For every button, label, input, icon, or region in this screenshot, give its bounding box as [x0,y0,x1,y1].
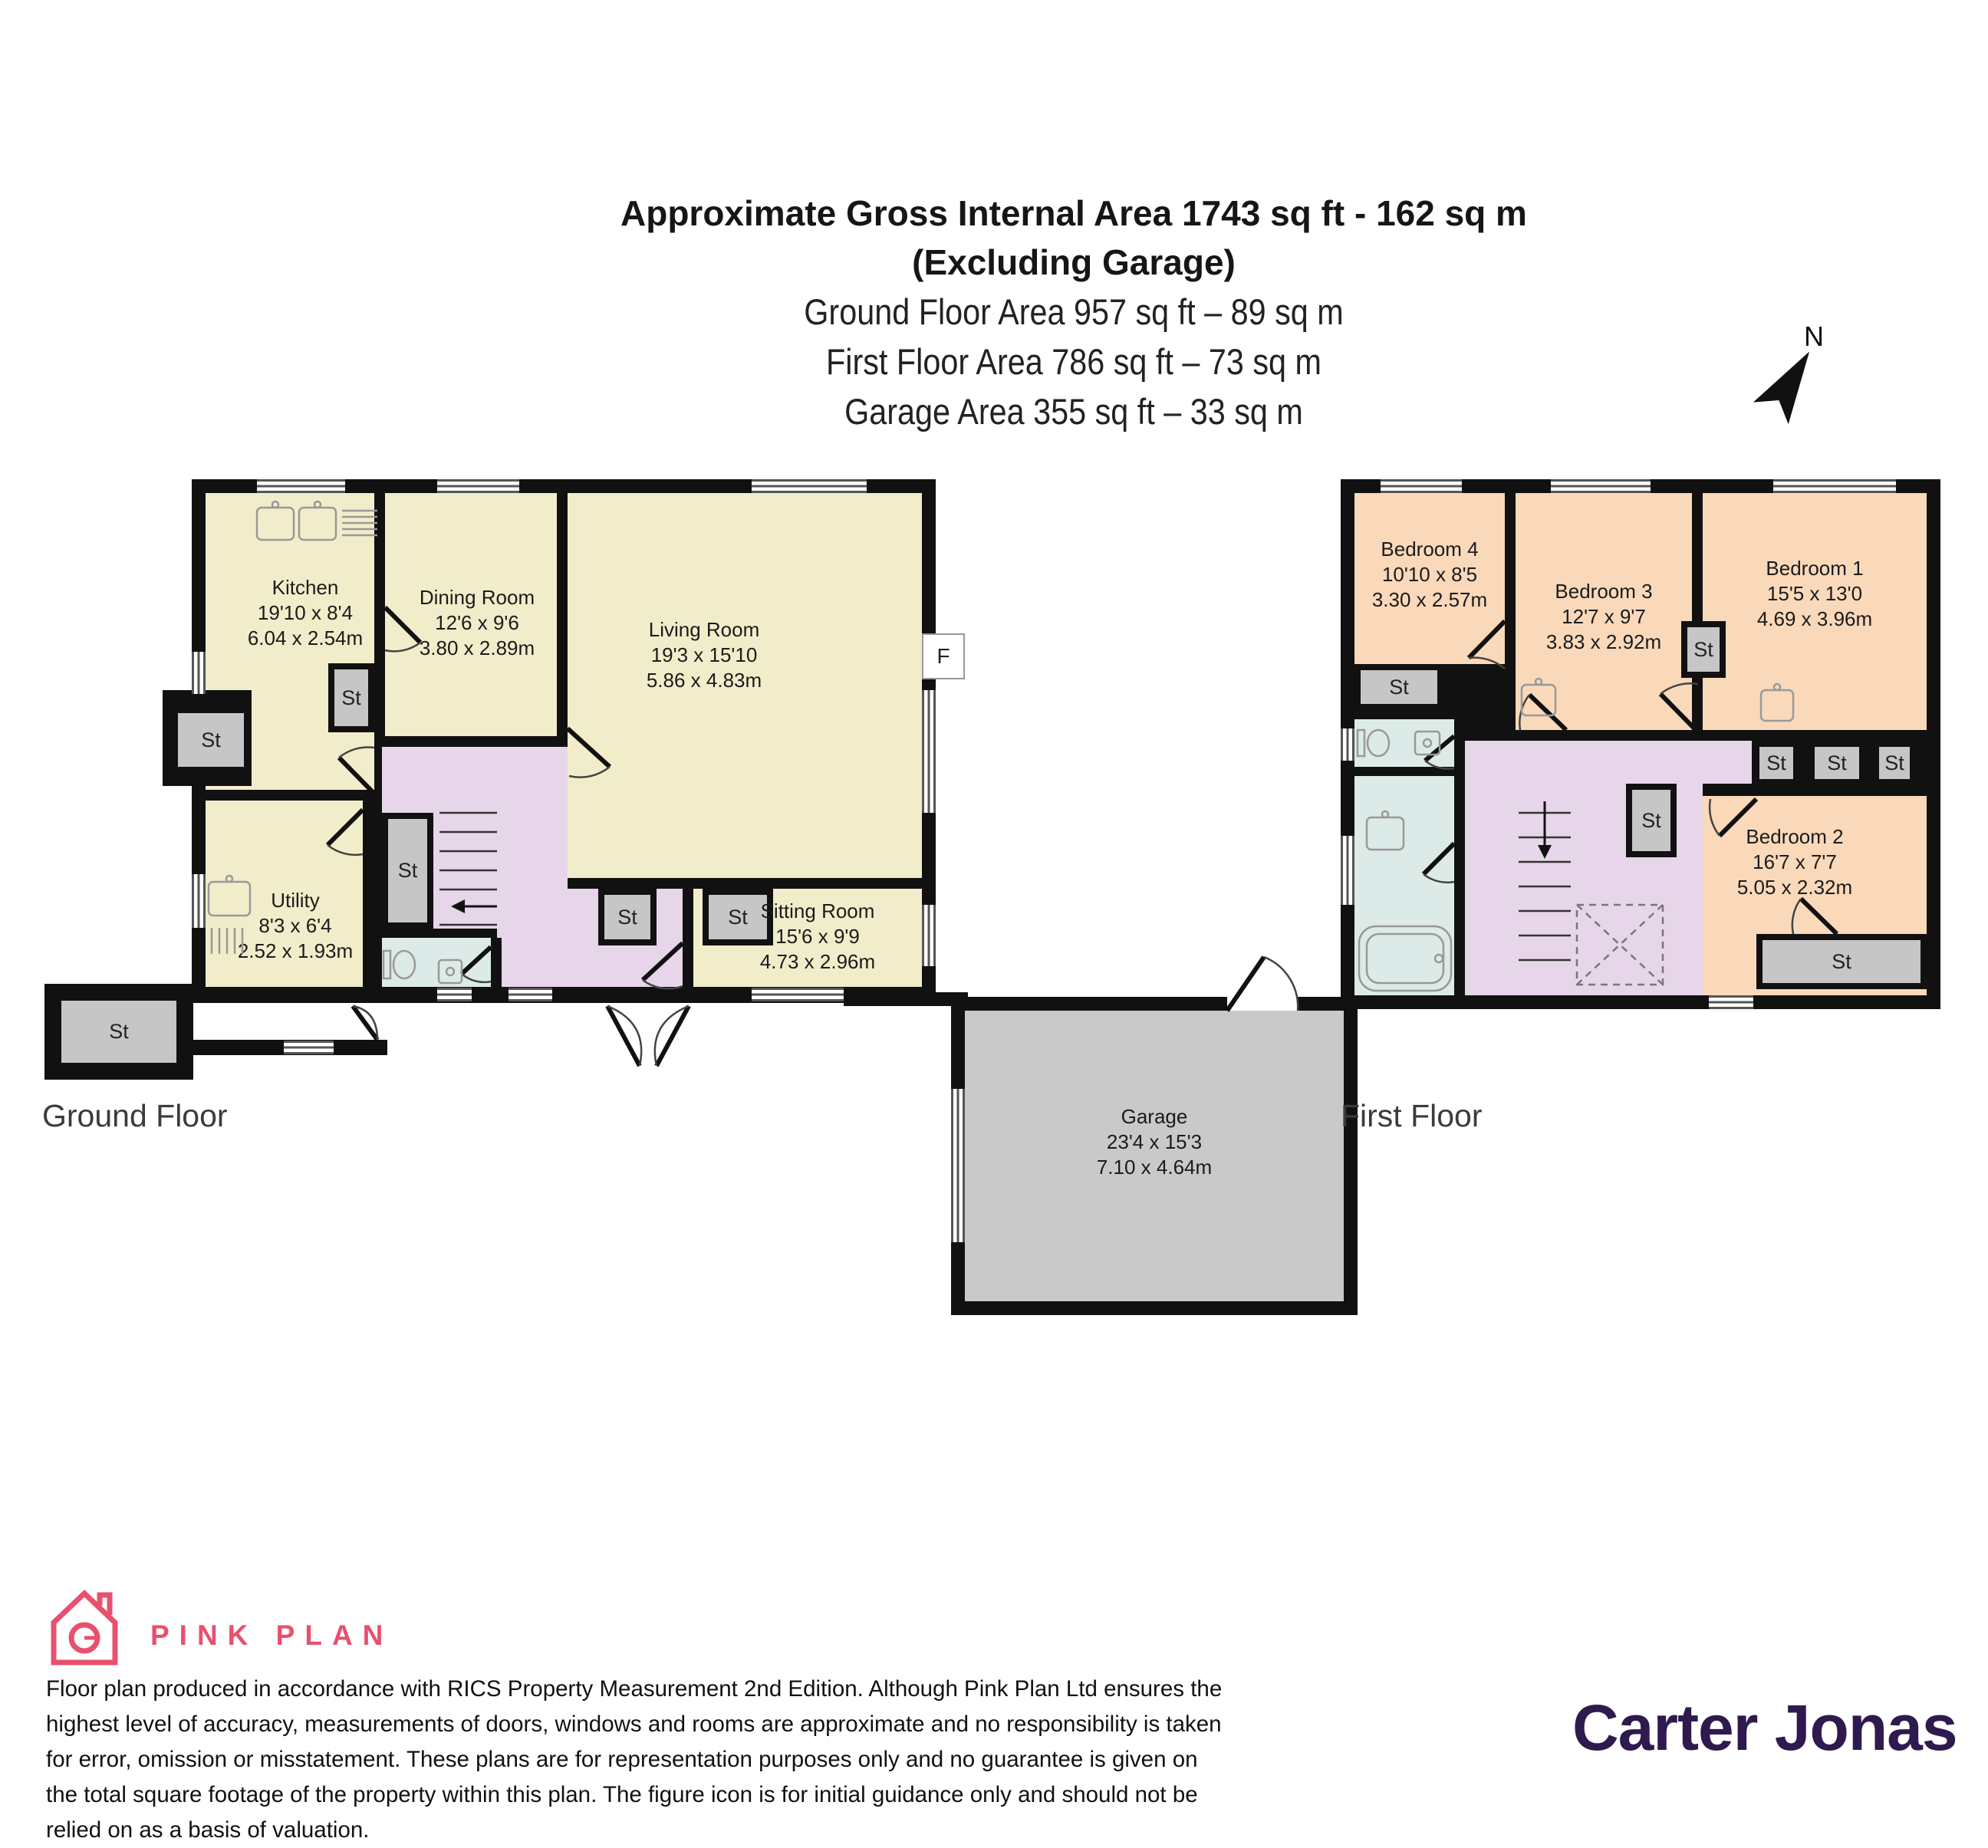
window [922,905,936,966]
room-dim-ft: 15'5 x 13'0 [1757,581,1872,607]
room-name: Garage [1097,1104,1212,1130]
room-label-bedroom1: Bedroom 1 15'5 x 13'0 4.69 x 3.96m [1757,556,1872,632]
storage-label: St [617,906,637,929]
window [1773,479,1896,493]
room-dim-ft: 15'6 x 9'9 [760,924,875,949]
room-dim-m: 4.69 x 3.96m [1757,607,1872,632]
title-line-2: (Excluding Garage) [499,239,1649,288]
landing-arm [1703,741,1752,784]
room-dim-m: 7.10 x 4.64m [1097,1155,1212,1180]
room-name: Bedroom 2 [1737,824,1852,850]
storage-label: St [201,728,221,752]
storage-label: St [1693,638,1713,662]
window [257,479,345,493]
area-first: First Floor Area 786 sq ft – 73 sq m [568,338,1580,388]
first-floor-label: First Floor [1341,1098,1483,1134]
storage-label: St [1884,751,1904,775]
room-label-sitting: Sitting Room 15'6 x 9'9 4.73 x 2.96m [760,899,875,975]
title-line-1: Approximate Gross Internal Area 1743 sq … [499,190,1649,239]
storage-label: St [1766,751,1786,775]
title-block: Approximate Gross Internal Area 1743 sq … [499,190,1649,438]
room-name: Bedroom 3 [1546,579,1661,604]
storage-closet: St [1809,741,1865,785]
ground-floor-label: Ground Floor [42,1098,228,1134]
room-name: Living Room [647,617,762,643]
storage-closet: St [61,1001,176,1063]
room-dim-ft: 12'7 x 9'7 [1546,604,1661,630]
storage-label: St [1832,950,1851,974]
window [1551,479,1651,493]
fireplace-label: F [936,644,950,669]
room-label-bedroom3: Bedroom 3 12'7 x 9'7 3.83 x 2.92m [1546,579,1661,655]
room-label-living: Living Room 19'3 x 15'10 5.86 x 4.83m [647,617,762,693]
window [752,988,844,1001]
window [437,479,519,493]
north-arrow-icon [1753,340,1827,424]
room-name: Kitchen [248,575,363,600]
link-wall [844,992,968,1006]
room-name: Sitting Room [760,899,875,924]
storage-closet: St [1753,741,1799,785]
room-dim-ft: 16'7 x 7'7 [1737,850,1852,875]
area-ground: Ground Floor Area 957 sq ft – 89 sq m [568,288,1580,338]
wall-below-stairs [382,929,497,938]
window [437,988,472,1001]
room-dim-m: 3.80 x 2.89m [420,636,535,661]
wc-ground [382,938,491,987]
storage-label: St [1641,809,1661,833]
window [192,652,206,694]
room-name: Utility [238,888,353,913]
storage-closet: St [178,713,244,767]
area-garage: Garage Area 355 sq ft – 33 sq m [568,388,1580,438]
wc-first [1354,719,1454,767]
room-name: Bedroom 1 [1757,556,1872,581]
storage-closet: St [1626,784,1677,857]
room-dim-ft: 19'3 x 15'10 [647,643,762,668]
garage-door-gap [1227,997,1298,1011]
room-label-bedroom4: Bedroom 4 10'10 x 8'5 3.30 x 2.57m [1372,537,1487,613]
window [922,690,936,813]
storage-closet: St [1681,621,1726,678]
north-label: N [1804,321,1824,353]
room-name: Dining Room [420,585,535,610]
room-name: Bedroom 4 [1372,537,1487,562]
room-dim-m: 6.04 x 2.54m [248,626,363,651]
storage-closet: St [1756,934,1927,989]
window [284,1041,334,1054]
storage-closet: St [1873,741,1916,785]
room-dim-m: 2.52 x 1.93m [238,939,353,964]
storage-label: St [398,859,418,883]
room-dim-m: 3.83 x 2.92m [1546,630,1661,655]
storage-label: St [1389,676,1409,699]
window [951,1089,965,1242]
storage-closet: St [328,663,374,732]
storage-label: St [109,1020,129,1044]
room-label-bedroom2: Bedroom 2 16'7 x 7'7 5.05 x 2.32m [1737,824,1852,900]
pink-plan-logo-icon [54,1593,115,1662]
window [1709,995,1753,1009]
storage-label: St [1827,751,1847,775]
room-dim-ft: 12'6 x 9'6 [420,610,535,636]
room-label-utility: Utility 8'3 x 6'4 2.52 x 1.93m [238,888,353,964]
window [752,479,867,493]
room-label-garage: Garage 23'4 x 15'3 7.10 x 4.64m [1097,1104,1212,1180]
carter-jonas-logo: Carter Jonas [1572,1691,1957,1765]
room-dim-m: 5.86 x 4.83m [647,668,762,693]
room-label-kitchen: Kitchen 19'10 x 8'4 6.04 x 2.54m [248,575,363,651]
window [1381,479,1462,493]
window [192,874,206,928]
room-dim-ft: 19'10 x 8'4 [248,600,363,626]
window [1341,728,1354,761]
window [509,988,552,1001]
fireplace-box: F [922,633,965,679]
room-dim-ft: 8'3 x 6'4 [238,913,353,939]
room-dim-ft: 23'4 x 15'3 [1097,1130,1212,1155]
bathroom-first [1354,776,1454,995]
room-dim-m: 5.05 x 2.32m [1737,875,1852,900]
pink-plan-wordmark: PINK PLAN [150,1619,393,1652]
floorplan-page: { "header": { "line1": "Approximate Gros… [0,0,1988,1802]
window [1341,836,1354,905]
storage-label: St [341,686,361,710]
storage-closet: St [598,889,657,945]
room-dim-m: 4.73 x 2.96m [760,949,875,975]
storage-closet: St [382,813,433,929]
room-dim-m: 3.30 x 2.57m [1372,587,1487,613]
storage-label: St [728,906,748,929]
landing-first [1465,741,1703,995]
storage-closet: St [1354,664,1443,710]
room-dim-ft: 10'10 x 8'5 [1372,562,1487,587]
room-label-dining: Dining Room 12'6 x 9'6 3.80 x 2.89m [420,585,535,661]
disclaimer-text: Floor plan produced in accordance with R… [46,1672,1231,1848]
wall-wc [491,938,502,987]
